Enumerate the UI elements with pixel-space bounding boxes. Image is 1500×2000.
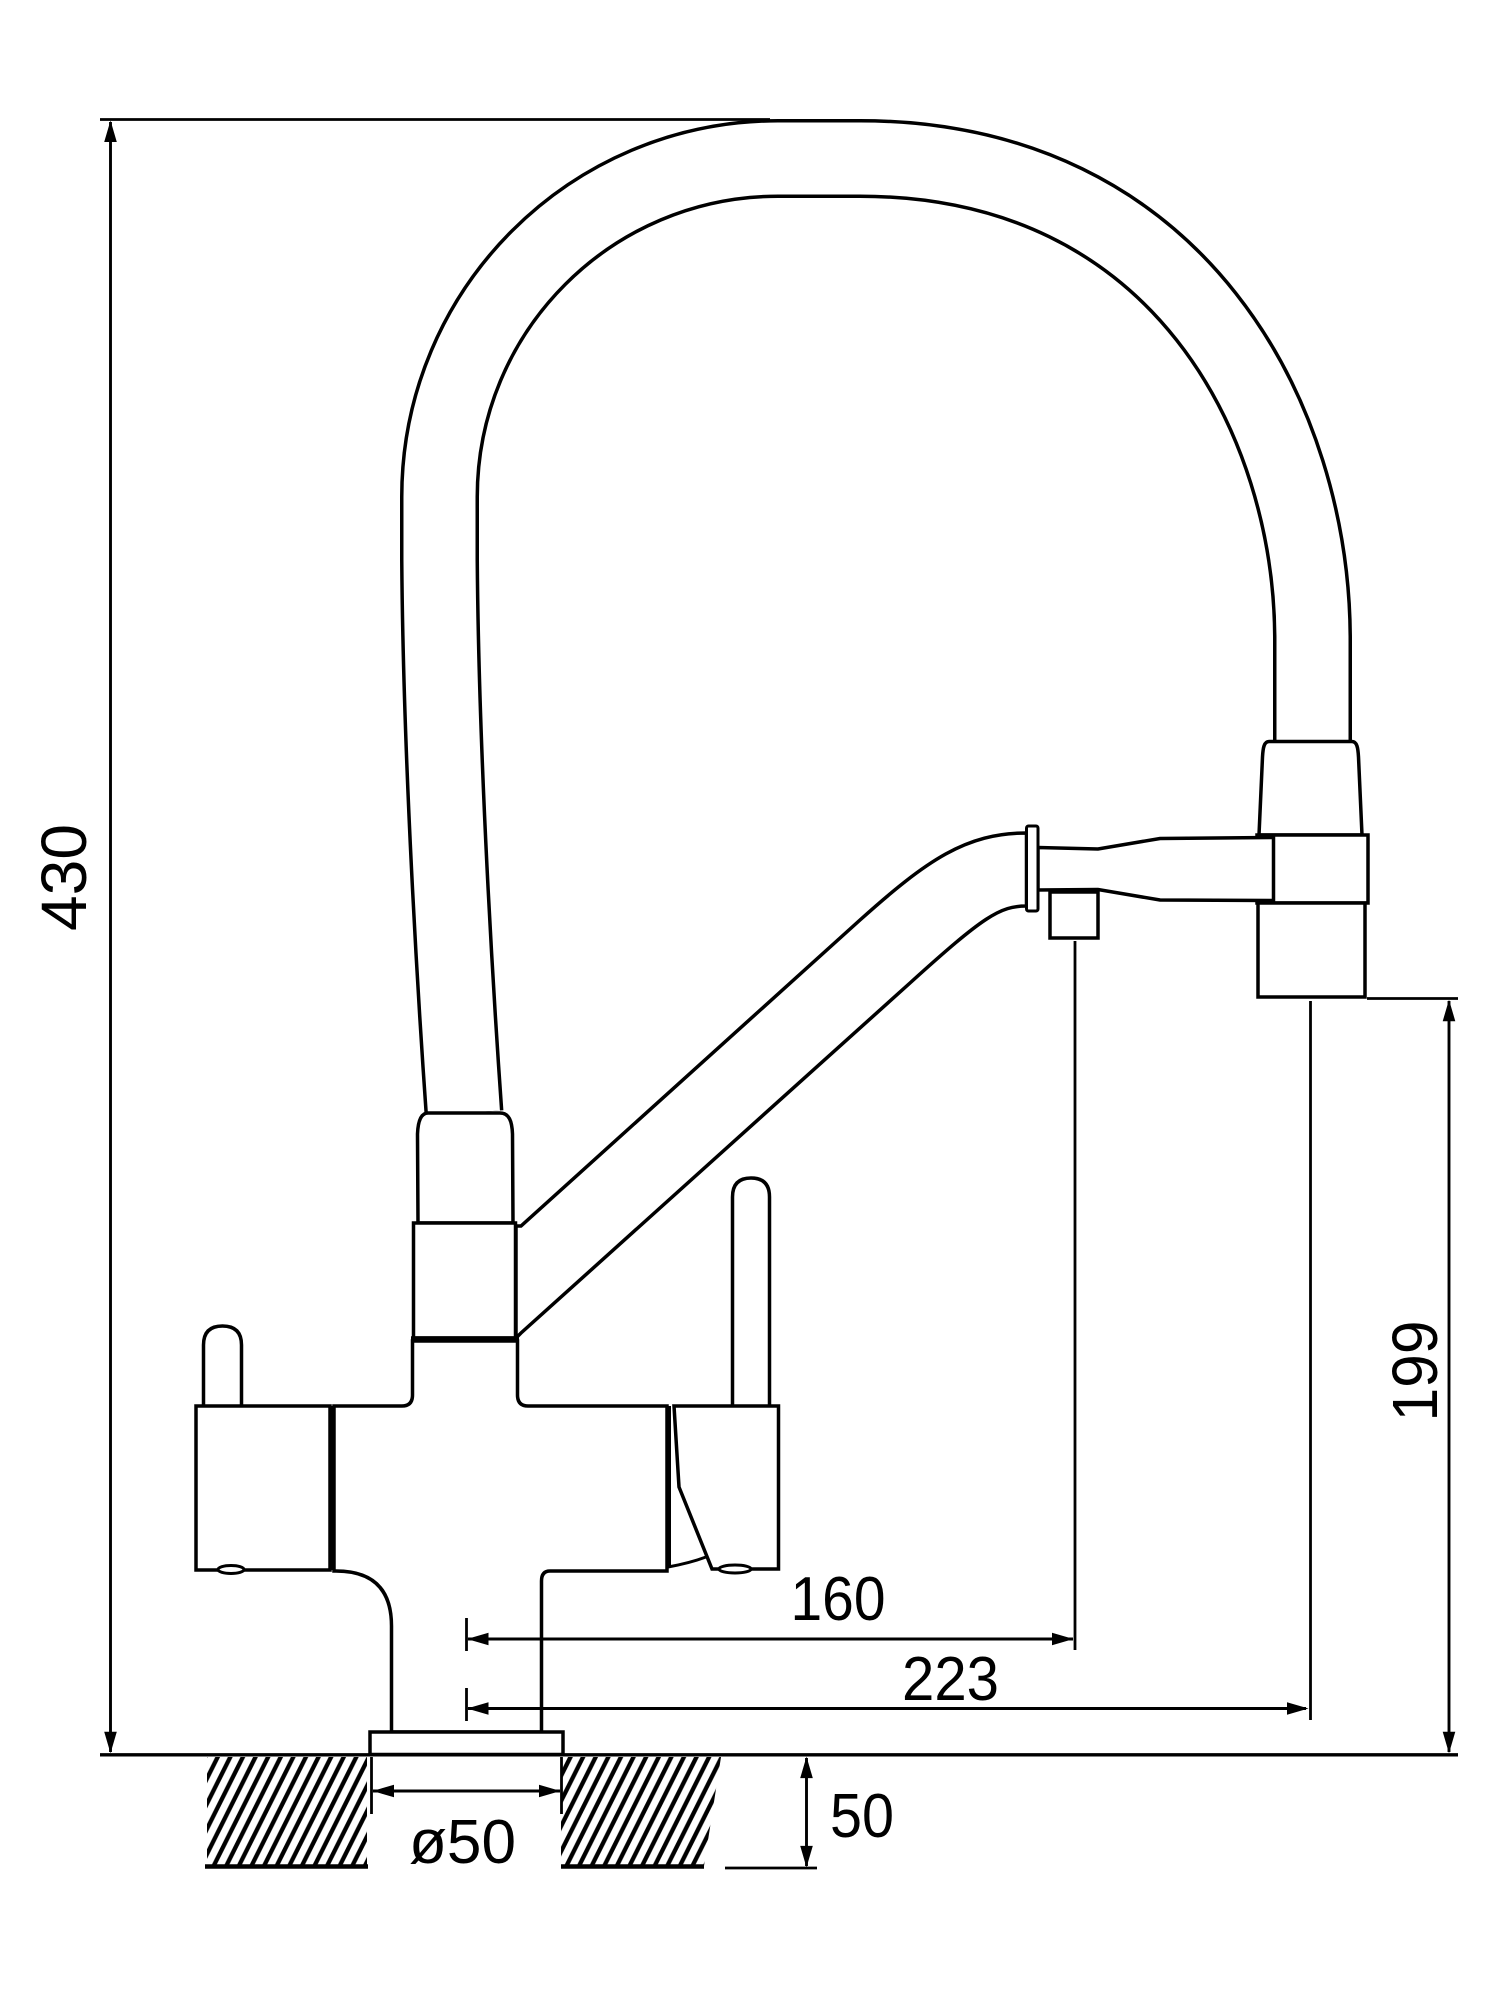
- svg-text:160: 160: [791, 1565, 886, 1634]
- svg-text:223: 223: [902, 1645, 999, 1714]
- svg-text:50: 50: [830, 1782, 894, 1851]
- svg-text:430: 430: [28, 824, 100, 931]
- svg-text:199: 199: [1379, 1321, 1451, 1422]
- svg-text:ø50: ø50: [409, 1808, 516, 1877]
